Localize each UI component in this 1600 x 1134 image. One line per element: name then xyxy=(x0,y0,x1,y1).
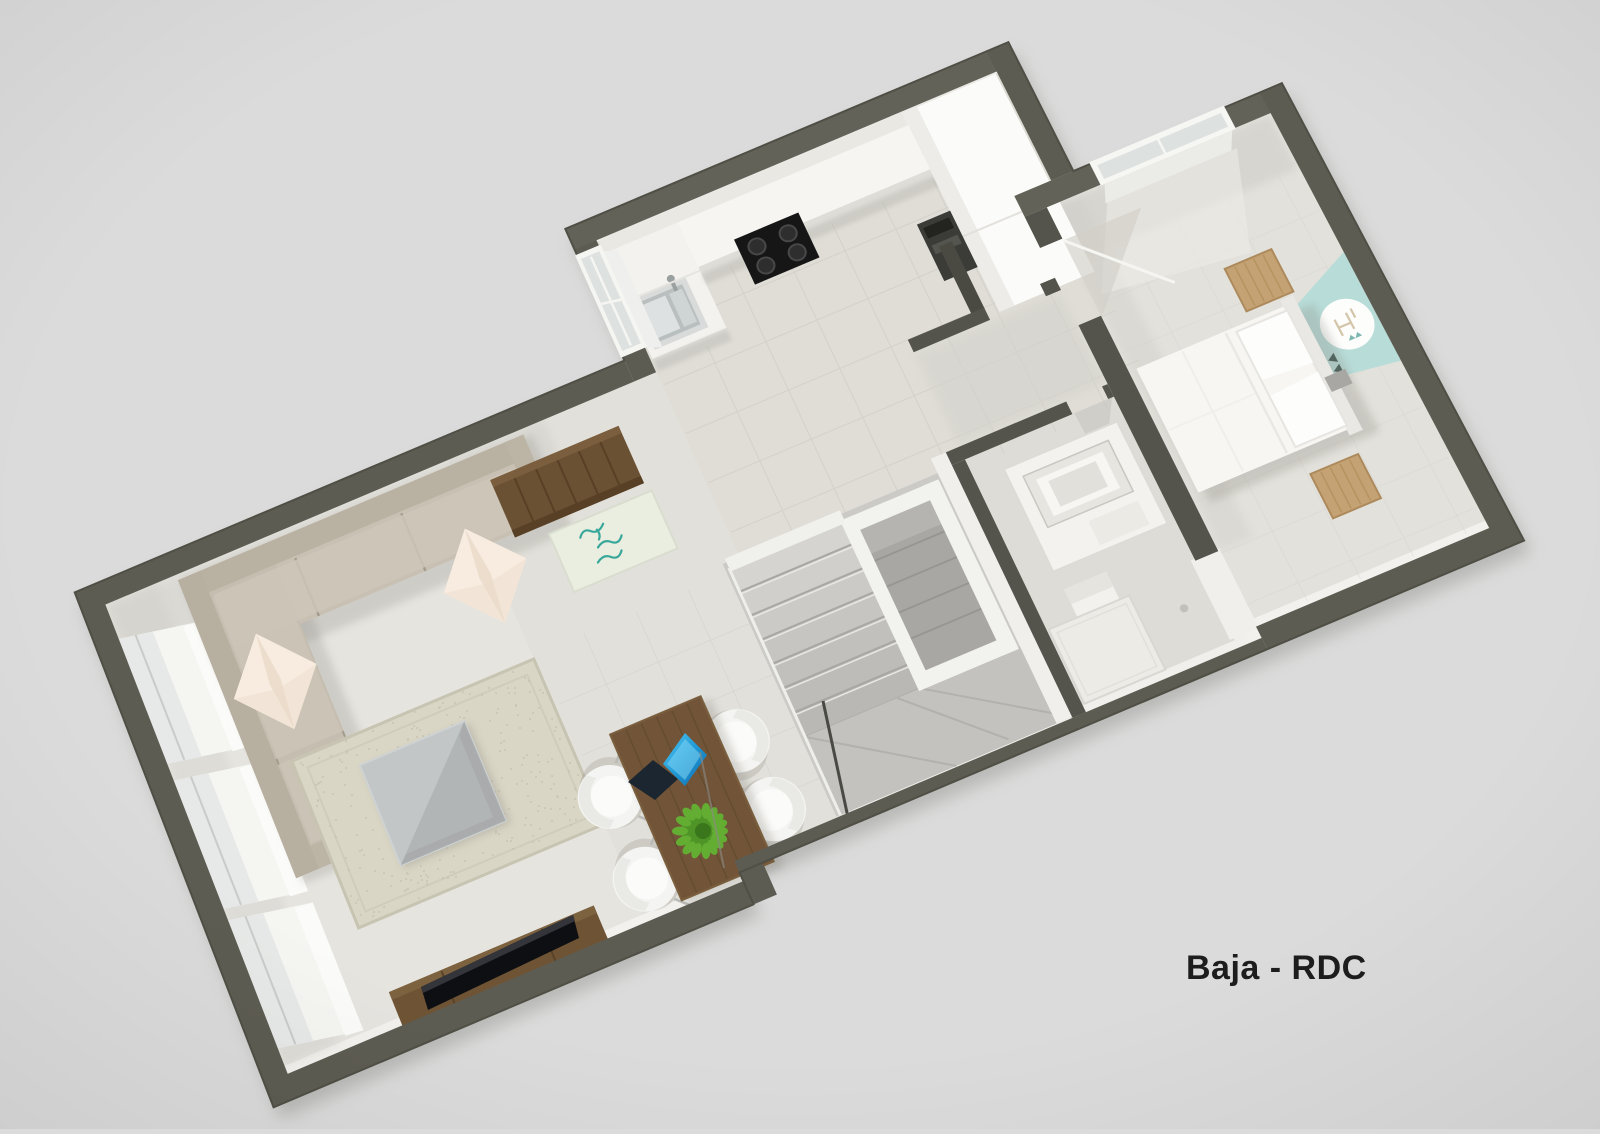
svg-text:Baja - RDC: Baja - RDC xyxy=(1186,949,1367,987)
